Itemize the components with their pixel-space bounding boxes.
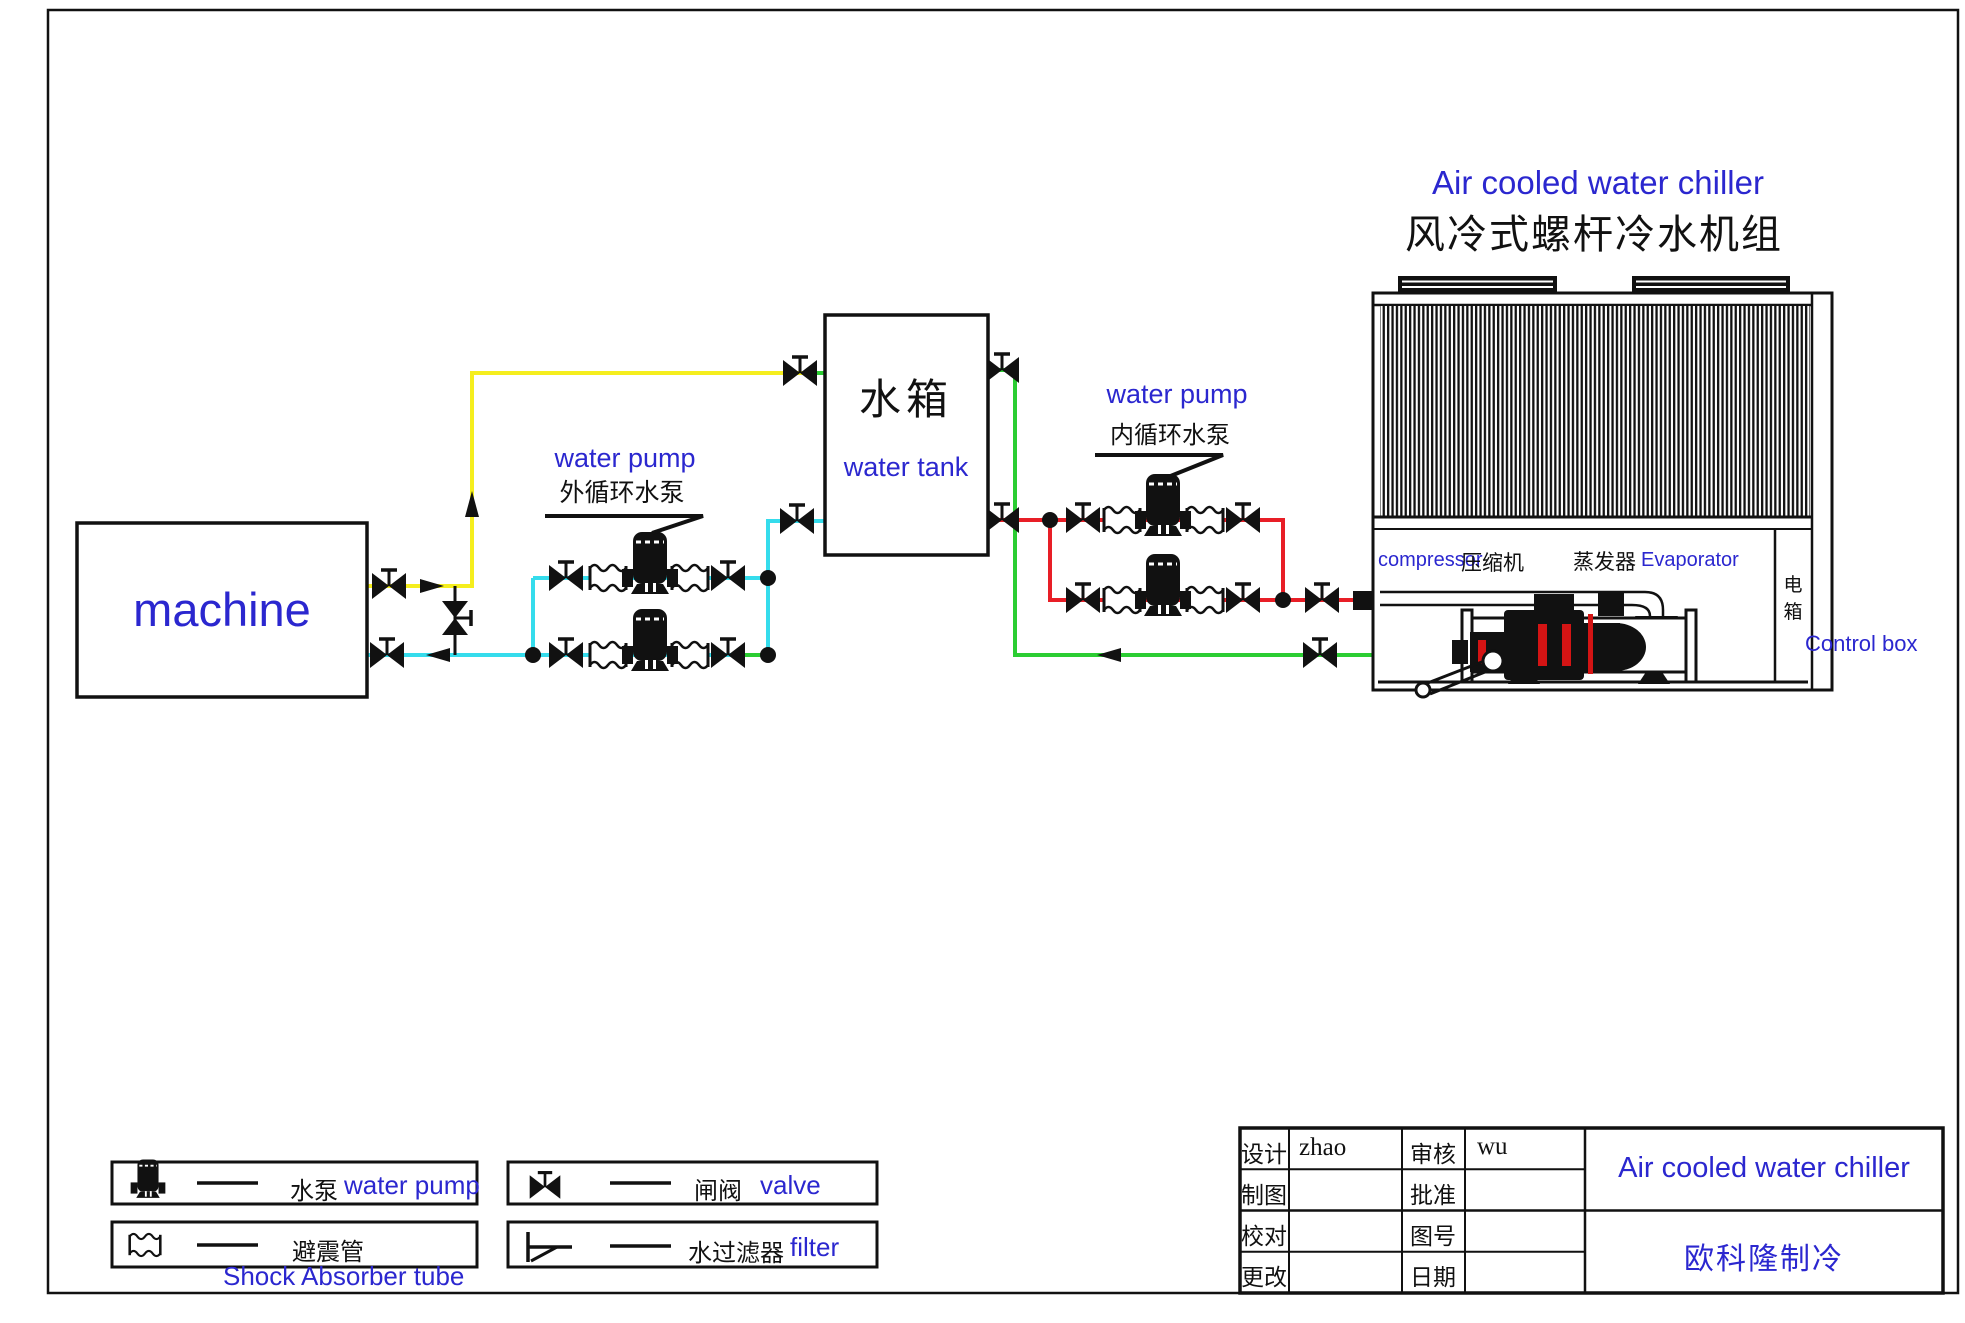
valve-icon bbox=[372, 570, 406, 599]
external-pump-label-en: water pump bbox=[554, 443, 695, 474]
control-box-label-en: Control box bbox=[1805, 631, 1918, 657]
water-pump-icon bbox=[1135, 474, 1191, 536]
arrow-left-green bbox=[1097, 648, 1121, 662]
valve-icon bbox=[549, 562, 583, 591]
condenser-coil bbox=[1380, 306, 1810, 517]
legend-pump-zh: 水泵 bbox=[290, 1171, 338, 1206]
legend-valve-icon bbox=[530, 1173, 561, 1199]
machine-label: machine bbox=[133, 582, 311, 637]
tb-review-label: 审核 bbox=[1410, 1135, 1456, 1169]
water-tank-label-en: water tank bbox=[844, 452, 969, 483]
evaporator-label-en: Evaporator bbox=[1641, 549, 1739, 572]
legend-pump-en: water pump bbox=[344, 1170, 480, 1201]
tb-drawing-no-label: 图号 bbox=[1410, 1217, 1456, 1251]
water-tank-label-zh: 水箱 bbox=[859, 366, 953, 427]
valve-icon bbox=[780, 505, 814, 534]
water-pump-icon bbox=[622, 609, 678, 671]
valve-icon bbox=[1066, 584, 1100, 613]
shock-absorber-icon bbox=[590, 642, 626, 668]
tb-design-label: 设计 bbox=[1241, 1135, 1287, 1169]
drawing-canvas: Air cooled water chiller 风冷式螺杆冷水机组 machi… bbox=[0, 0, 1965, 1323]
tb-date-label: 日期 bbox=[1410, 1258, 1456, 1292]
legend-filter-icon bbox=[528, 1232, 572, 1262]
legend-filter-zh: 水过滤器 bbox=[688, 1233, 784, 1268]
shock-absorber-icon bbox=[1187, 507, 1223, 533]
tb-design-value: zhao bbox=[1299, 1134, 1346, 1162]
shock-absorber-icon bbox=[1104, 507, 1140, 533]
tb-product-name: Air cooled water chiller bbox=[1618, 1152, 1910, 1185]
main-title-zh: 风冷式螺杆冷水机组 bbox=[1405, 202, 1783, 260]
valve-icon bbox=[1226, 584, 1260, 613]
bypass-valve-icon bbox=[442, 601, 471, 635]
water-pump-icon bbox=[1135, 554, 1191, 616]
tb-review-value: wu bbox=[1477, 1133, 1508, 1161]
tb-revise-label: 更改 bbox=[1241, 1258, 1287, 1292]
valve-icon bbox=[711, 639, 745, 668]
internal-pump-label-en: water pump bbox=[1106, 379, 1247, 410]
shock-absorber-icon bbox=[590, 565, 626, 591]
external-pump-label-zh: 外循环水泵 bbox=[559, 473, 684, 509]
control-box-label-zh: 电箱 bbox=[1782, 572, 1804, 626]
fan-bar bbox=[1398, 276, 1557, 293]
legend-shock-icon bbox=[130, 1234, 161, 1256]
valve-icon bbox=[1066, 504, 1100, 533]
main-title-en: Air cooled water chiller bbox=[1432, 164, 1764, 202]
valve-icon bbox=[1305, 584, 1339, 613]
valve-icon bbox=[783, 357, 817, 386]
arrow-right-yellow bbox=[420, 579, 444, 593]
water-pump-icon bbox=[622, 532, 678, 594]
valve-icon bbox=[370, 639, 404, 668]
internal-pump-label-zh: 内循环水泵 bbox=[1110, 415, 1230, 450]
chiller-unit bbox=[1353, 276, 1832, 697]
valve-icon bbox=[711, 562, 745, 591]
shock-absorber-icon bbox=[1187, 587, 1223, 613]
valve-icon bbox=[549, 639, 583, 668]
tb-proof-label: 校对 bbox=[1241, 1217, 1287, 1251]
valve-icon bbox=[985, 354, 1019, 383]
arrow-up-yellow bbox=[465, 491, 479, 517]
tb-approve-label: 批准 bbox=[1410, 1176, 1456, 1210]
legend-shock-en: Shock Absorber tube bbox=[223, 1261, 464, 1292]
legend-filter-en: filter bbox=[790, 1232, 839, 1263]
shock-absorber-icon bbox=[1104, 587, 1140, 613]
arrow-left-cyan bbox=[426, 648, 450, 662]
evaporator-label-zh: 蒸发器 bbox=[1573, 546, 1636, 576]
legend-valve-en: valve bbox=[760, 1170, 821, 1201]
water-tank-box bbox=[825, 315, 988, 555]
fan-bar bbox=[1632, 276, 1790, 293]
legend-pump-icon bbox=[131, 1159, 166, 1197]
legend-valve-zh: 闸阀 bbox=[694, 1171, 742, 1206]
tb-draft-label: 制图 bbox=[1241, 1176, 1287, 1210]
valve-icon bbox=[1226, 504, 1260, 533]
valve-icon bbox=[1303, 639, 1337, 668]
compressor-label-zh: 压缩机 bbox=[1461, 547, 1524, 577]
tb-company-name: 欧科隆制冷 bbox=[1684, 1234, 1844, 1278]
